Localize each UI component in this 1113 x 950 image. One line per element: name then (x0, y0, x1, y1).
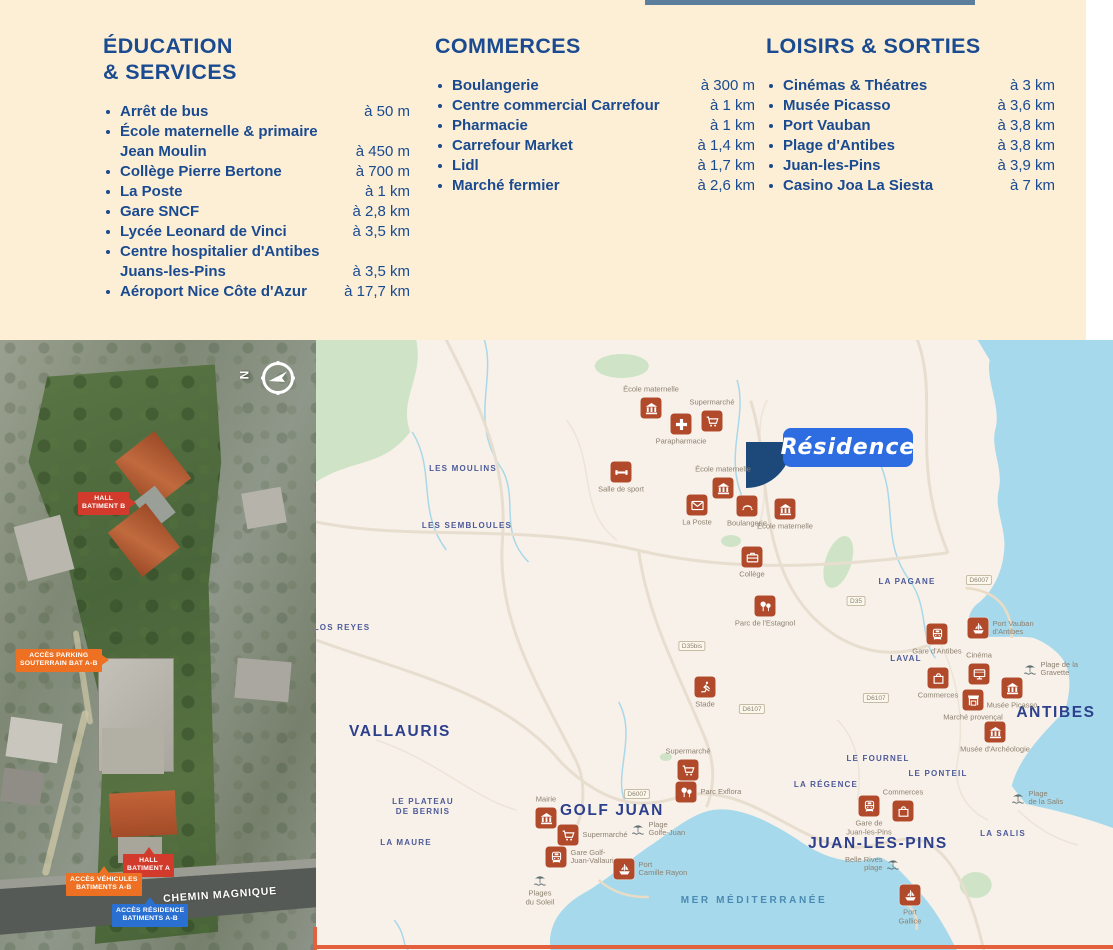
road-badge: D6007 (624, 789, 650, 799)
poi-label: Commerces (918, 692, 958, 701)
poi-parc-de-l-estagnol: Parc de l'Estagnol (755, 596, 776, 617)
amenities-panel: ÉDUCATION& SERVICESArrêt de busà 50 mÉco… (0, 0, 1086, 340)
poi-supermarche: Supermarché (702, 411, 723, 432)
beach-label: Plage de laGravette (1041, 660, 1079, 677)
train-icon (859, 796, 880, 817)
amenity-item: Carrefour Marketà 1,4 km (435, 136, 755, 156)
boat-icon (900, 885, 921, 906)
poi-label: Cinéma (966, 652, 992, 661)
bullet-icon (769, 164, 773, 168)
bullet-icon (438, 184, 442, 188)
amenity-item: Musée Picassoà 3,6 km (766, 96, 1055, 116)
poi-label: École maternelle (695, 466, 751, 475)
cart-icon (678, 760, 699, 781)
beach-label: Plagesdu Soleil (526, 890, 555, 907)
amenity-item: Lidlà 1,7 km (435, 156, 755, 176)
poi-label: Port Vauband'Antibes (993, 619, 1034, 636)
place-label-golf-juan: GOLF JUAN (560, 806, 664, 816)
road-badge: D6107 (863, 693, 889, 703)
beach-plage-de-la-salis: Plagede la Salis (1012, 792, 1025, 805)
poi-commerces: Commerces (893, 801, 914, 822)
amenity-distance: à 2,8 km (352, 202, 410, 222)
bullet-icon (438, 104, 442, 108)
compass-icon (256, 356, 300, 400)
poi-label: Gare deJuan-les-Pins (846, 820, 891, 837)
place-label-la-salis: LA SALIS (980, 829, 1026, 839)
cart-icon (558, 825, 579, 846)
amenity-item: Plage d'Antibesà 3,8 km (766, 136, 1055, 156)
trees-icon (755, 596, 776, 617)
place-label-les-sembloules: LES SEMBLOULES (422, 521, 512, 531)
place-label-vallauris: VALLAURIS (349, 727, 451, 737)
residence-label: Résidence (783, 428, 913, 467)
education-services-column: ÉDUCATION& SERVICESArrêt de busà 50 mÉco… (103, 33, 410, 302)
place-label-juan-les-pins: JUAN-LES-PINS (808, 839, 948, 849)
amenity-item: Gare SNCFà 2,8 km (103, 202, 410, 222)
amenity-distance: à 1 km (710, 116, 755, 136)
building-icon (713, 478, 734, 499)
poi-label: La Poste (682, 519, 712, 528)
place-label-le-ponteil: LE PONTEIL (908, 769, 967, 779)
beach-plage-de-la-gravette: Plage de laGravette (1024, 663, 1037, 676)
beach-label: Belle Rivesplage (845, 855, 883, 872)
place-label-mer-mediterranee: MER MÉDITERRANÉE (681, 896, 828, 906)
road-badge: D6107 (739, 704, 765, 714)
amenity-distance: à 7 km (1010, 176, 1055, 196)
amenity-list: Boulangerieà 300 mCentre commercial Carr… (435, 76, 755, 196)
amenity-list: Cinémas & Théatresà 3 kmMusée Picassoà 3… (766, 76, 1055, 196)
beach-umbrella-icon (534, 874, 547, 887)
amenity-distance: à 3 km (1010, 76, 1055, 96)
runner-icon (695, 677, 716, 698)
poi-commerces: Commerces (928, 668, 949, 689)
beach-umbrella-icon (1012, 792, 1025, 805)
residence-label-text: Résidence (781, 435, 916, 460)
aerial-photo: CHEMIN MAGNIQUE N HALLBATIMENT BACCÈS PA… (0, 340, 316, 950)
amenity-distance: à 1,4 km (697, 136, 755, 156)
poi-label: Supermarché (665, 748, 710, 757)
amenity-item: Casino Joa La Siestaà 7 km (766, 176, 1055, 196)
aerial-label-hall-batiment-b: HALLBATIMENT B (78, 492, 129, 515)
amenity-item: Cinémas & Théatresà 3 km (766, 76, 1055, 96)
amenity-distance: à 50 m (364, 102, 410, 122)
poi-stade: Stade (695, 677, 716, 698)
poi-ecole-maternelle: École maternelle (641, 398, 662, 419)
poi-label: Parc Exflora (701, 788, 742, 797)
bottom-accent-line (313, 945, 1113, 949)
arrow-right-icon (102, 655, 114, 665)
cross-icon (671, 414, 692, 435)
road-badge: D35 (847, 596, 866, 606)
section-title: ÉDUCATION& SERVICES (103, 33, 410, 85)
bag-icon (893, 801, 914, 822)
poi-label: Musée Picasso (987, 702, 1038, 711)
commerces-column: COMMERCESBoulangerieà 300 mCentre commer… (435, 33, 755, 196)
road-badge: D6007 (966, 575, 992, 585)
boat-icon (968, 618, 989, 639)
amenity-distance: à 300 m (701, 76, 755, 96)
poi-parc-exflora: Parc Exflora (676, 782, 697, 803)
poi-marche-provencal: Marché provençal (963, 690, 984, 711)
aerial-label-acces-vehicules-batiments-a-b: ACCÈS VÉHICULESBATIMENTS A-B (66, 873, 142, 896)
place-label-la-maure: LA MAURE (380, 838, 432, 848)
poi-musee-d-archeologie: Musée d'Archéologie (985, 722, 1006, 743)
poi-label: Parc de l'Estagnol (735, 620, 795, 629)
amenity-distance: à 3,8 km (997, 136, 1055, 156)
poi-label: Parapharmacie (656, 438, 707, 447)
bullet-icon (106, 290, 110, 294)
poi-salle-de-sport: Salle de sport (611, 462, 632, 483)
amenity-item: Arrêt de busà 50 m (103, 102, 410, 122)
page: { "colors":{"navy":"#1a4a90","cream":"#f… (0, 0, 1113, 950)
bottom-accent-corner (313, 927, 317, 950)
beach-label: PlageGolfe-Juan (649, 820, 686, 837)
amenity-distance: à 1 km (710, 96, 755, 116)
map-markers-layer: Résidence École maternelleSupermarchéPar… (316, 340, 1113, 950)
screen-icon (969, 664, 990, 685)
bullet-icon (769, 84, 773, 88)
poi-label: Commerces (883, 789, 923, 798)
arrow-up-icon (99, 861, 109, 873)
beach-umbrella-icon (1024, 663, 1037, 676)
bullet-icon (106, 170, 110, 174)
poi-port-vauban-d-antibes: Port Vauband'Antibes (968, 618, 989, 639)
bullet-icon (438, 144, 442, 148)
compass-north-letter: N (237, 371, 251, 380)
building-icon (775, 499, 796, 520)
poi-ecole-maternelle: École maternelle (713, 478, 734, 499)
amenity-distance: à 3,5 km (352, 222, 410, 242)
poi-mairie: Mairie (536, 808, 557, 829)
place-label-les-moulins: LES MOULINS (429, 464, 497, 474)
amenities-map: Résidence École maternelleSupermarchéPar… (316, 340, 1113, 950)
poi-gare-golf-juan-vallauris: Gare Golf-Juan-Vallauris (546, 847, 567, 868)
road-badge: D35bis (678, 641, 705, 651)
amenity-distance: à 3,8 km (997, 116, 1055, 136)
building-icon (536, 808, 557, 829)
poi-label: Stade (695, 701, 715, 710)
beach-umbrella-icon (887, 858, 900, 871)
bag-icon (928, 668, 949, 689)
bullet-icon (769, 144, 773, 148)
amenity-distance: à 450 m (356, 142, 410, 162)
amenity-item: Pharmacieà 1 km (435, 116, 755, 136)
poi-label: PortCamille Rayon (639, 860, 688, 877)
beach-umbrella-icon (632, 823, 645, 836)
arrow-up-icon (144, 842, 154, 854)
place-label-la-regence: LA RÉGENCE (794, 780, 858, 790)
poi-port-gallice: PortGallice (900, 885, 921, 906)
trees-icon (676, 782, 697, 803)
bullet-icon (438, 164, 442, 168)
arrow-up-icon (145, 892, 155, 904)
poi-label: Supermarché (583, 831, 628, 840)
amenity-item: Aéroport Nice Côte d'Azurà 17,7 km (103, 282, 410, 302)
beach-plages-du-soleil: Plagesdu Soleil (534, 874, 547, 887)
poi-label: Mairie (536, 796, 556, 805)
top-accent-bar (645, 0, 975, 5)
aerial-labels: HALLBATIMENT BACCÈS PARKINGSOUTERRAIN BA… (0, 340, 316, 950)
bullet-icon (106, 190, 110, 194)
poi-label: Supermarché (689, 399, 734, 408)
amenity-item: Juan-les-Pinsà 3,9 km (766, 156, 1055, 176)
croissant-icon (737, 496, 758, 517)
amenity-item: Boulangerieà 300 m (435, 76, 755, 96)
poi-college: Collège (742, 547, 763, 568)
poi-cinema: Cinéma (969, 664, 990, 685)
bullet-icon (106, 110, 110, 114)
amenity-item: Centre hospitalier d'AntibesJuans-les-Pi… (103, 242, 410, 282)
train-icon (546, 847, 567, 868)
amenity-list: Arrêt de busà 50 mÉcole maternelle & pri… (103, 102, 410, 302)
poi-label: Salle de sport (598, 486, 644, 495)
bullet-icon (438, 124, 442, 128)
beach-belle-rives-plage: Belle Rivesplage (887, 858, 900, 871)
poi-ecole-maternelle: École maternelle (775, 499, 796, 520)
amenity-distance: à 17,7 km (344, 282, 410, 302)
dumbbell-icon (611, 462, 632, 483)
bullet-icon (106, 210, 110, 214)
poi-label: Gare d'Antibes (912, 648, 961, 657)
amenity-distance: à 2,6 km (697, 176, 755, 196)
building-icon (985, 722, 1006, 743)
bullet-icon (769, 184, 773, 188)
amenity-item: Centre commercial Carrefourà 1 km (435, 96, 755, 116)
bullet-icon (106, 230, 110, 234)
amenity-distance: à 3,6 km (997, 96, 1055, 116)
poi-musee-picasso: Musée Picasso (1002, 678, 1023, 699)
place-label-los-reyes: LOS REYES (316, 623, 370, 633)
building-icon (641, 398, 662, 419)
place-label-le-fournel: LE FOURNEL (846, 754, 909, 764)
amenity-distance: à 1 km (365, 182, 410, 202)
amenity-item: École maternelle & primaireJean Moulinà … (103, 122, 410, 162)
poi-label: Collège (739, 571, 764, 580)
poi-parapharmacie: Parapharmacie (671, 414, 692, 435)
poi-label: École maternelle (623, 386, 679, 395)
case-icon (742, 547, 763, 568)
amenity-item: Port Vaubanà 3,8 km (766, 116, 1055, 136)
beach-plage-golfe-juan: PlageGolfe-Juan (632, 823, 645, 836)
aerial-label-acces-parking-souterrain-bat-a-b: ACCÈS PARKINGSOUTERRAIN BAT A-B (16, 649, 102, 672)
building-icon (1002, 678, 1023, 699)
poi-gare-d-antibes: Gare d'Antibes (927, 624, 948, 645)
amenity-distance: à 3,5 km (352, 262, 410, 282)
amenity-item: Marché fermierà 2,6 km (435, 176, 755, 196)
place-label-le-plateau-de-bernis: LE PLATEAUDE BERNIS (392, 797, 454, 817)
bullet-icon (106, 130, 110, 134)
section-title: LOISIRS & SORTIES (766, 33, 1055, 59)
bullet-icon (769, 124, 773, 128)
boat-icon (614, 859, 635, 880)
beach-label: Plagede la Salis (1029, 789, 1064, 806)
poi-boulangerie: Boulangerie (737, 496, 758, 517)
train-icon (927, 624, 948, 645)
amenity-distance: à 3,9 km (997, 156, 1055, 176)
amenity-item: La Posteà 1 km (103, 182, 410, 202)
poi-label: PortGallice (899, 909, 922, 926)
bullet-icon (106, 250, 110, 254)
poi-supermarche: Supermarché (558, 825, 579, 846)
section-title: COMMERCES (435, 33, 755, 59)
cart-icon (702, 411, 723, 432)
poi-port-camille-rayon: PortCamille Rayon (614, 859, 635, 880)
arrow-right-icon (129, 498, 141, 508)
poi-gare-de-juan-les-pins: Gare deJuan-les-Pins (859, 796, 880, 817)
place-label-la-pagane: LA PAGANE (878, 577, 935, 587)
amenity-item: Lycée Leonard de Vincià 3,5 km (103, 222, 410, 242)
poi-label: École maternelle (757, 523, 813, 532)
loisirs-sorties-column: LOISIRS & SORTIESCinémas & Théatresà 3 k… (766, 33, 1055, 196)
poi-label: Musée d'Archéologie (960, 746, 1030, 755)
bullet-icon (769, 104, 773, 108)
envelope-icon (687, 495, 708, 516)
amenity-item: Collège Pierre Bertoneà 700 m (103, 162, 410, 182)
poi-supermarche: Supermarché (678, 760, 699, 781)
stall-icon (963, 690, 984, 711)
bullet-icon (438, 84, 442, 88)
aerial-label-acces-residence-batiments-a-b: ACCÈS RÉSIDENCEBATIMENTS A-B (112, 904, 188, 927)
amenity-distance: à 1,7 km (697, 156, 755, 176)
poi-la-poste: La Poste (687, 495, 708, 516)
poi-label: Gare Golf-Juan-Vallauris (571, 848, 618, 865)
amenity-distance: à 700 m (356, 162, 410, 182)
